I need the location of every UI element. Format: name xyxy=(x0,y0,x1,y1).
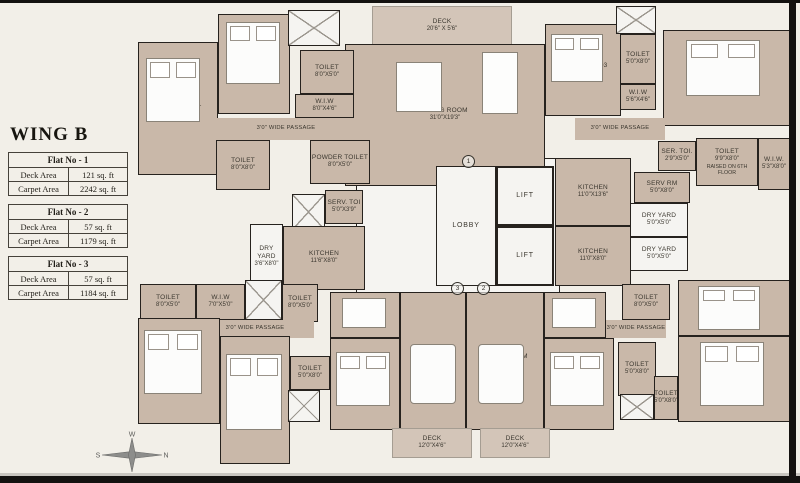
table-furniture-11 xyxy=(396,62,442,112)
flat-2-deck-label: Deck Area xyxy=(9,220,69,234)
dry-yard-2: DRY YARD5'0"X5'0" xyxy=(630,203,688,237)
lobby: LOBBY xyxy=(436,166,496,286)
flat-1-carpet-label: Carpet Area xyxy=(9,182,69,196)
flat-3-table: Flat No - 3 Deck Area 57 sq. ft Carpet A… xyxy=(8,256,128,300)
flat-1-title: Flat No - 1 xyxy=(9,153,128,168)
flat-3-carpet-value: 1184 sq. ft xyxy=(69,286,128,300)
flat-2-table: Flat No - 2 Deck Area 57 sq. ft Carpet A… xyxy=(8,204,128,248)
kitchen-3: KITCHEN11'0"X8'0" xyxy=(555,226,631,286)
right-frame-bar xyxy=(789,0,796,478)
toilet-bed1: TOILET8'0"X8'0" xyxy=(216,140,270,190)
toilet-bed2: TOILET8'0"X5'0" xyxy=(300,50,354,94)
info-panel: WING B Flat No - 1 Deck Area 121 sq. ft … xyxy=(8,124,130,308)
stairs-bottom-right xyxy=(620,394,654,420)
toilet-bed3: TOILET5'0"X8'0" xyxy=(620,34,656,84)
deck-top: DECK20'6" X 5'6" xyxy=(372,6,512,46)
flat-2-carpet-value: 1179 sq. ft xyxy=(69,234,128,248)
bed-furniture-1 xyxy=(146,58,200,122)
kitchen-1: KITCHEN11'6"X8'0" xyxy=(283,226,365,290)
bed-furniture-8 xyxy=(550,352,604,406)
bed-furniture-7 xyxy=(336,352,390,406)
toilet-bottom-center-2: TOILET5'0"X8'0" xyxy=(290,356,330,390)
bed-furniture-10 xyxy=(700,342,764,406)
flat-2-title: Flat No - 2 xyxy=(9,205,128,220)
toilet-bottom-right-3: TOILET5'0"X8'0" xyxy=(654,376,678,420)
powder-toilet: POWDER TOILET8'0"X5'0" xyxy=(310,140,370,184)
flat-3-deck-label: Deck Area xyxy=(9,272,69,286)
sofa-furniture-13 xyxy=(410,344,456,404)
servant-toilet-1: SERV. TOI5'0"X3'9" xyxy=(325,190,363,224)
flat-1-deck-value: 121 sq. ft xyxy=(69,168,128,182)
compass-north-label: N xyxy=(163,453,168,460)
entrance-marker-3: 3 xyxy=(451,282,464,295)
wiw-bed3: W.I.W5'6"X4'6" xyxy=(620,84,656,110)
table-furniture-15 xyxy=(342,298,386,328)
stairs-mid xyxy=(292,194,325,230)
table-furniture-12 xyxy=(482,52,518,114)
deck-bottom-left: DECK12'0"X4'6" xyxy=(392,428,472,458)
bottom-frame-bar xyxy=(0,476,800,483)
stairs-bottom-center xyxy=(288,390,320,422)
entrance-marker-2: 2 xyxy=(477,282,490,295)
flat-1-table: Flat No - 1 Deck Area 121 sq. ft Carpet … xyxy=(8,152,128,196)
flat-1-carpet-value: 2242 sq. ft xyxy=(69,182,128,196)
wing-title: WING B xyxy=(10,124,130,146)
bed-furniture-9 xyxy=(698,286,760,330)
table-furniture-16 xyxy=(552,298,596,328)
compass-south-label: S xyxy=(96,453,101,460)
flat-2-carpet-label: Carpet Area xyxy=(9,234,69,248)
bed-furniture-6 xyxy=(226,354,282,430)
toilet-raised: TOILET9'9"X8'0"RAISED ON 6TH FLOOR xyxy=(696,138,758,186)
stairs-top-left xyxy=(288,10,340,46)
top-frame-bar xyxy=(0,0,800,3)
servant-toilet-2: SER. TOI.2'9"X5'0" xyxy=(658,141,696,171)
wiw-bed2: W.I.W8'0"X4'6" xyxy=(295,94,354,118)
bed-furniture-2 xyxy=(226,22,280,84)
flat-2-deck-value: 57 sq. ft xyxy=(69,220,128,234)
stairs-bottom-left xyxy=(245,280,282,320)
sofa-furniture-14 xyxy=(478,344,524,404)
toilet-bottom-center-1: TOILET8'0"X5'0" xyxy=(282,284,318,322)
bed-furniture-4 xyxy=(686,40,760,96)
bed-furniture-3 xyxy=(551,34,603,82)
flat-3-deck-value: 57 sq. ft xyxy=(69,272,128,286)
dry-yard-3: DRY YARD5'0"X5'0" xyxy=(630,237,688,271)
stairs-top-right xyxy=(616,6,656,34)
flat-1-deck-label: Deck Area xyxy=(9,168,69,182)
passage-top-left: 3'0" WIDE PASSAGE xyxy=(216,118,356,140)
wiw-bottom-left: W.I.W7'0"X5'0" xyxy=(196,284,245,320)
lift-2: LIFT xyxy=(496,226,554,286)
flat-3-carpet-label: Carpet Area xyxy=(9,286,69,300)
passage-top-right: 3'0" WIDE PASSAGE xyxy=(575,118,665,140)
bed-furniture-5 xyxy=(144,330,202,394)
deck-bottom-right: DECK12'0"X4'6" xyxy=(480,428,550,458)
flat-3-title: Flat No - 3 xyxy=(9,257,128,272)
toilet-bottom-right-1: TOILET8'0"X5'0" xyxy=(622,284,670,320)
toilet-bottom-left: TOILET8'0"X5'0" xyxy=(140,284,196,320)
entrance-marker-1: 1 xyxy=(462,155,475,168)
toilet-bottom-right-2: TOILET5'0"X8'0" xyxy=(618,342,656,396)
compass-west-label: W xyxy=(129,432,136,439)
wiw-right: W.I.W.5'3"X8'0" xyxy=(758,138,790,190)
servant-room: SERV RM5'0"X8'0" xyxy=(634,172,690,203)
kitchen-2: KITCHEN11'0"X13'6" xyxy=(555,158,631,226)
lift-1: LIFT xyxy=(496,166,554,226)
passage-bottom-right: 3'0" WIDE PASSAGE xyxy=(606,320,666,338)
floorplan-page: DECK20'6" X 5'6"LIVING ROOM31'0"X19'3"BE… xyxy=(0,0,800,483)
